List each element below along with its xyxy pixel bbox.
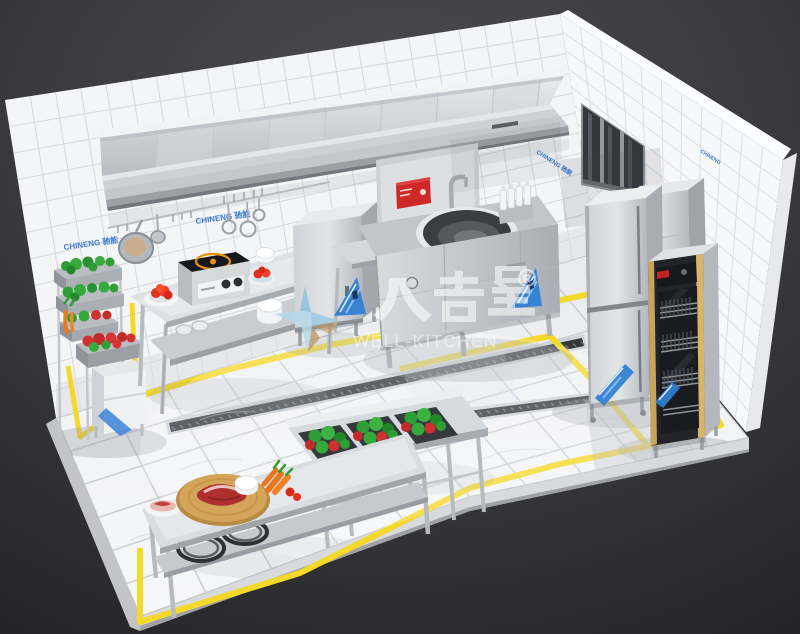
svg-text:WELL-KITCHEN: WELL-KITCHEN xyxy=(353,331,498,351)
svg-text:R: R xyxy=(523,274,531,286)
